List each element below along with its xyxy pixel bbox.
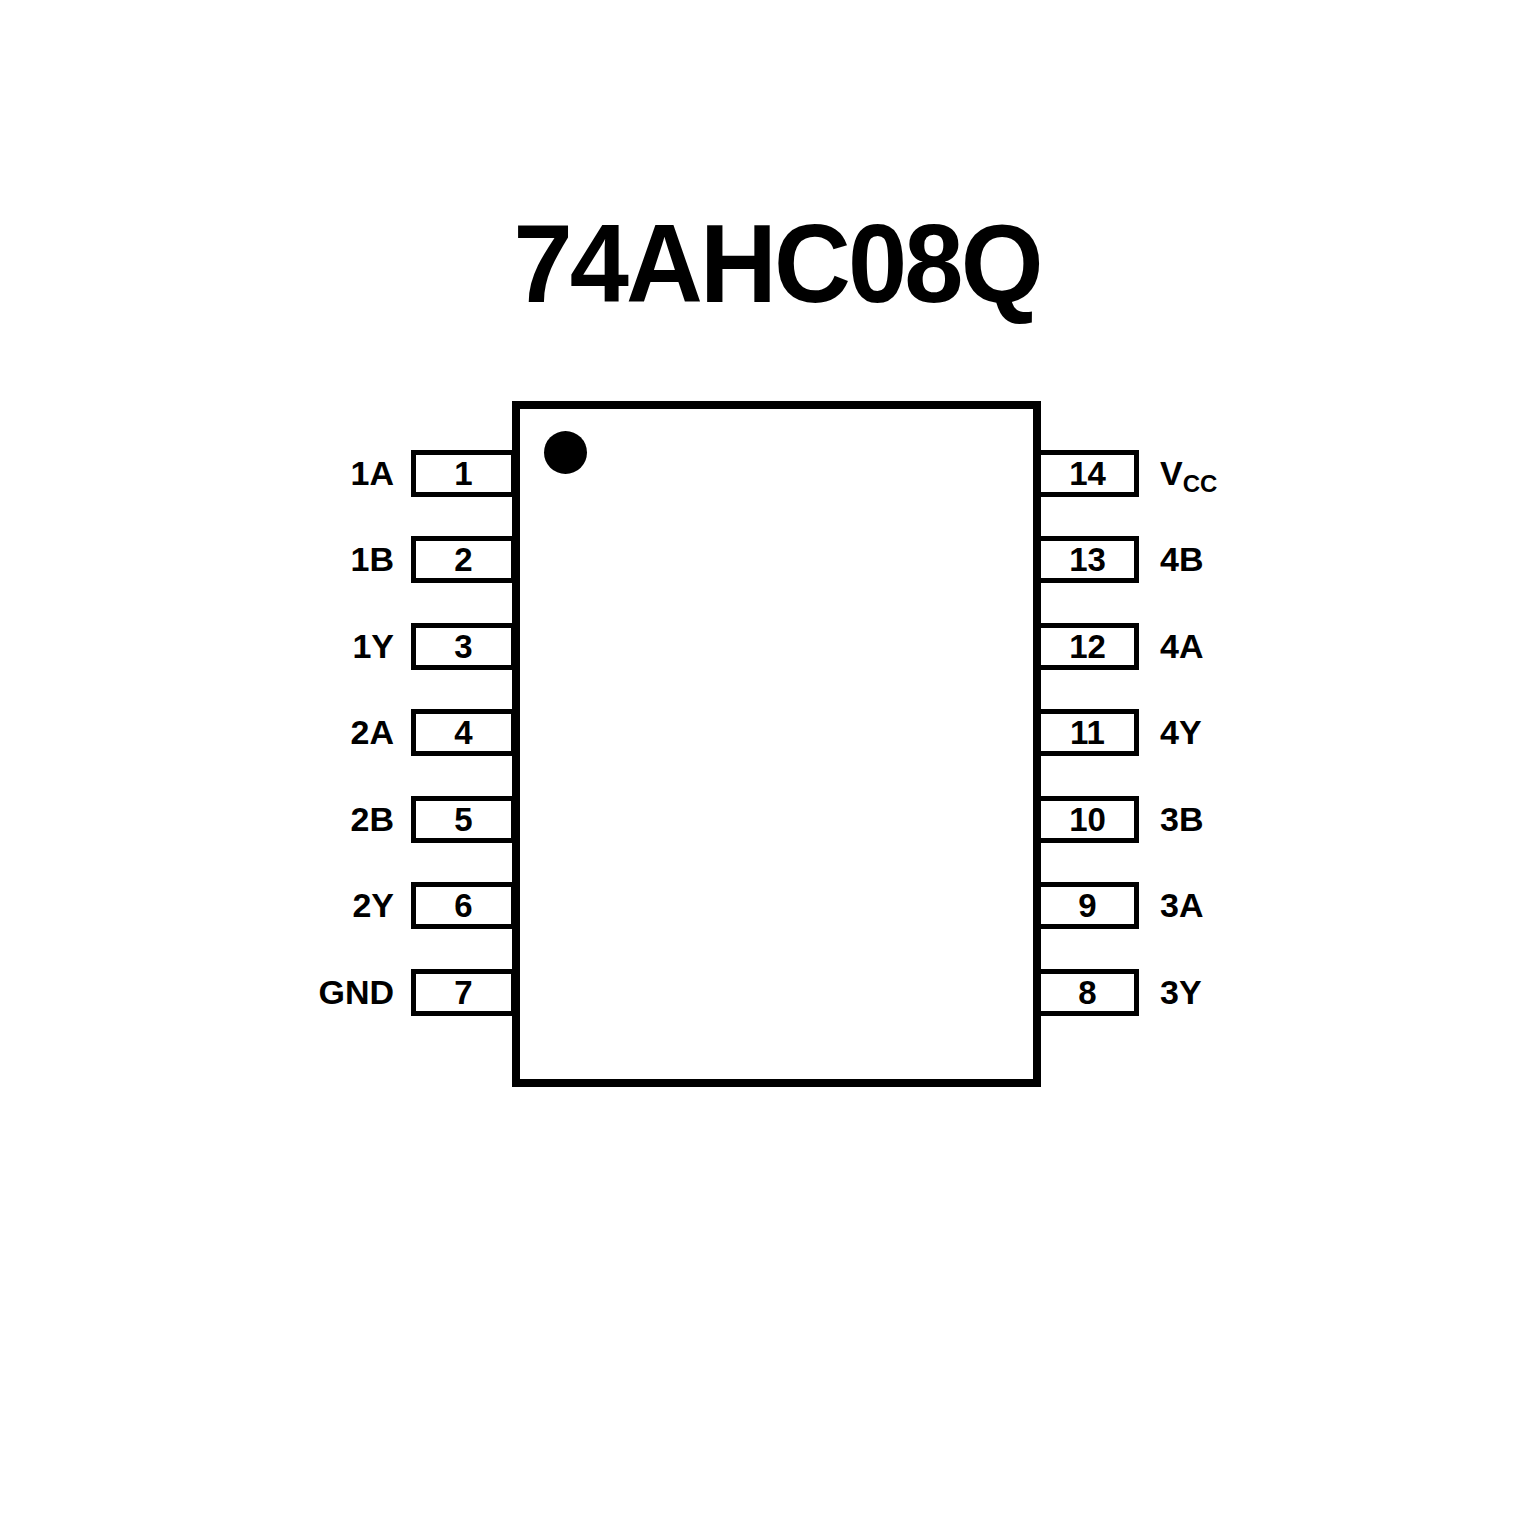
pin-box-9: 9 (1036, 882, 1139, 929)
pin-number: 10 (1069, 803, 1106, 836)
pin-box-5: 5 (411, 796, 516, 843)
pin-label-text: 2B (351, 800, 394, 838)
pin-number: 6 (454, 889, 472, 922)
pin-number: 1 (454, 457, 472, 490)
pin-box-13: 13 (1036, 536, 1139, 583)
pin-label-2A: 2A (150, 709, 394, 756)
pin-label-text: 1Y (352, 627, 394, 665)
pin-number: 11 (1070, 716, 1105, 749)
pin-box-2: 2 (411, 536, 516, 583)
pin-number: 13 (1069, 543, 1106, 576)
chip-body (512, 401, 1041, 1087)
pin-label-text: 1A (351, 454, 394, 492)
pin-label-text: GND (318, 973, 394, 1011)
pin-label-text: 4B (1160, 540, 1203, 578)
pin-box-4: 4 (411, 709, 516, 756)
pinout-diagram: 74AHC08Q 11A21B31Y42A52B62Y7GND14VCC134B… (0, 0, 1535, 1535)
pin-label-text: 4A (1160, 627, 1203, 665)
pin-label-2Y: 2Y (150, 882, 394, 929)
pin-number: 8 (1078, 976, 1096, 1009)
pin-label-4B: 4B (1160, 536, 1400, 583)
pin-box-12: 12 (1036, 623, 1139, 670)
pin-label-subscript: CC (1183, 470, 1218, 497)
pin-box-8: 8 (1036, 969, 1139, 1016)
pin-number: 2 (454, 543, 472, 576)
pin-number: 7 (454, 976, 472, 1009)
pin-box-11: 11 (1036, 709, 1139, 756)
pin-number: 9 (1078, 889, 1096, 922)
pin-label-text: 1B (351, 540, 394, 578)
pin-label-4Y: 4Y (1160, 709, 1400, 756)
pin-label-VCC: VCC (1160, 450, 1400, 507)
pin-number: 4 (454, 716, 472, 749)
pin-box-6: 6 (411, 882, 516, 929)
pin-label-2B: 2B (150, 796, 394, 843)
pin-label-4A: 4A (1160, 623, 1400, 670)
pin1-indicator-dot (544, 431, 587, 474)
pin-label-3A: 3A (1160, 882, 1400, 929)
pin-box-10: 10 (1036, 796, 1139, 843)
pin-label-text: 3A (1160, 886, 1203, 924)
pin-label-1B: 1B (150, 536, 394, 583)
pin-label-text: 2Y (352, 886, 394, 924)
pin-box-3: 3 (411, 623, 516, 670)
pin-box-1: 1 (411, 450, 516, 497)
pin-label-3B: 3B (1160, 796, 1400, 843)
pin-label-1Y: 1Y (150, 623, 394, 670)
pin-label-text: V (1160, 454, 1183, 492)
pin-number: 12 (1069, 630, 1106, 663)
pin-label-text: 3Y (1160, 973, 1202, 1011)
pin-label-1A: 1A (150, 450, 394, 497)
pin-label-text: 4Y (1160, 713, 1202, 751)
pin-label-text: 2A (351, 713, 394, 751)
chip-title: 74AHC08Q (478, 199, 1077, 328)
pin-box-14: 14 (1036, 450, 1139, 497)
pin-label-text: 3B (1160, 800, 1203, 838)
pin-label-GND: GND (150, 969, 394, 1016)
pin-number: 3 (454, 630, 472, 663)
pin-box-7: 7 (411, 969, 516, 1016)
pin-number: 5 (454, 803, 472, 836)
pin-number: 14 (1069, 457, 1106, 490)
pin-label-3Y: 3Y (1160, 969, 1400, 1016)
